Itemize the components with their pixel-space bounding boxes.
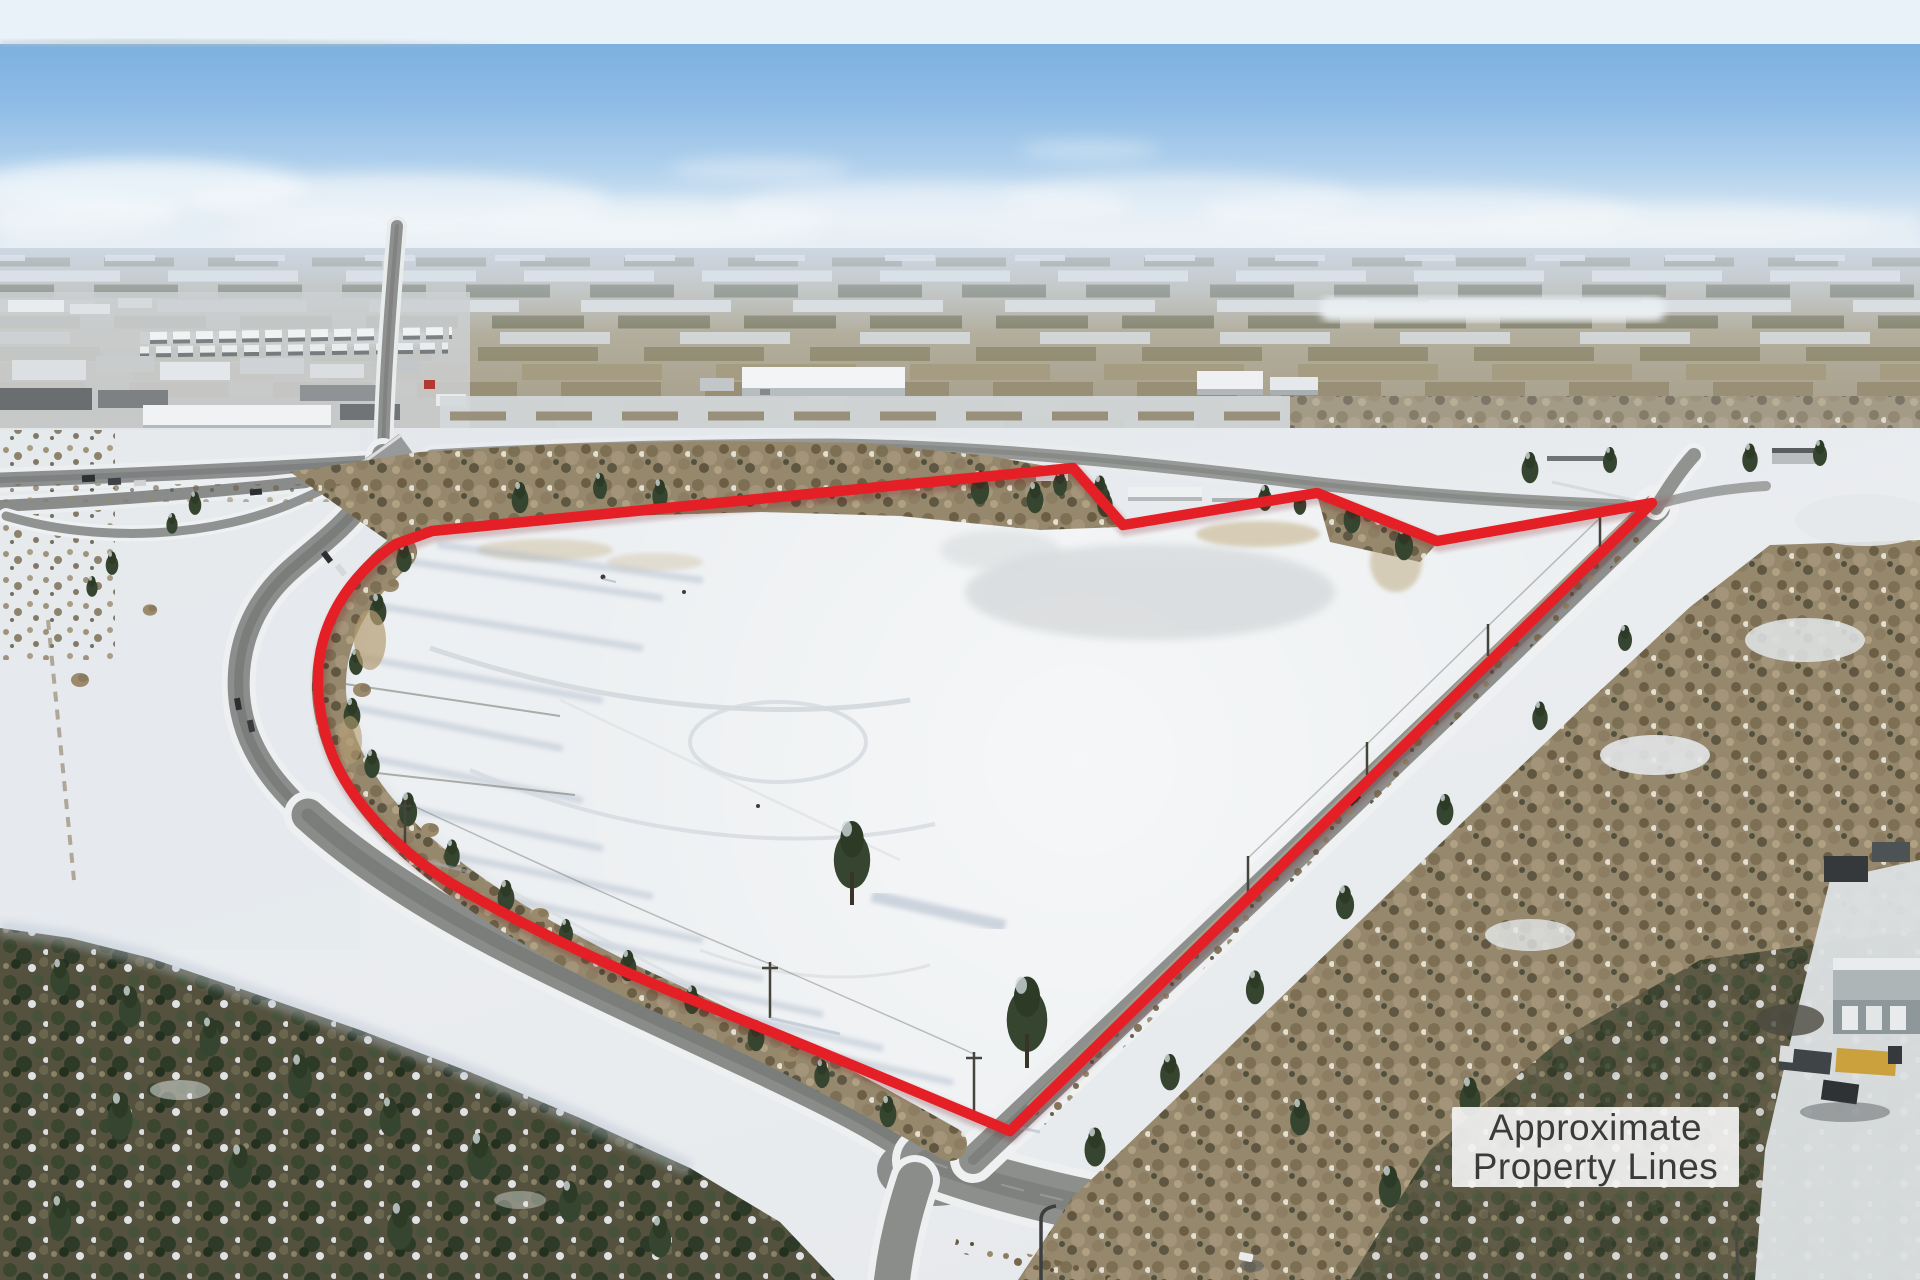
approximate-property-lines-label: Approximate Property Lines <box>1452 1107 1739 1187</box>
aerial-property-photo: Approximate Property Lines <box>0 0 1920 1280</box>
garage-building <box>1833 958 1920 1034</box>
label-line-2: Property Lines <box>1473 1147 1719 1186</box>
label-line-1: Approximate <box>1489 1108 1702 1147</box>
photo-canvas <box>0 0 1920 1280</box>
